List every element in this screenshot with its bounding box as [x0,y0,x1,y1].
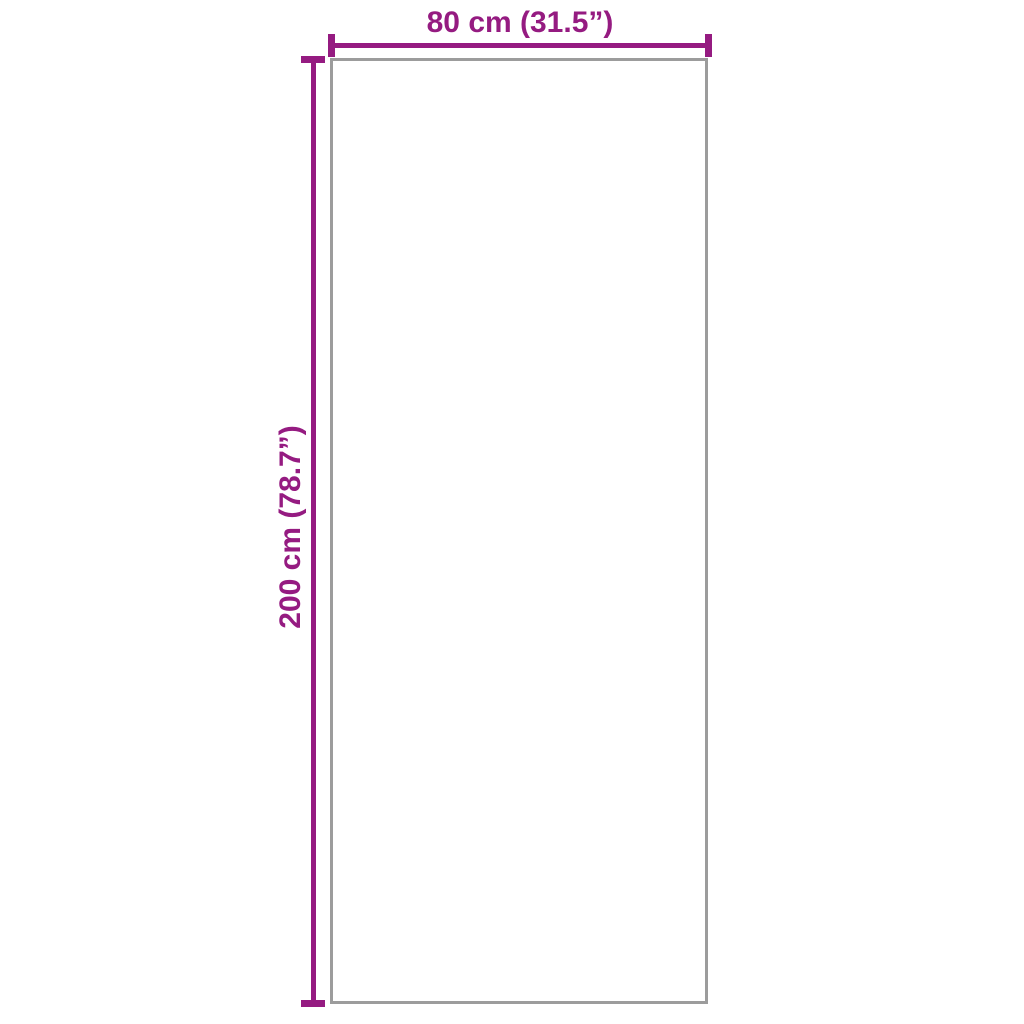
height-dimension-label: 200 cm (78.7”) [274,407,308,647]
dimension-diagram-canvas: 80 cm (31.5”) 200 cm (78.7”) [0,0,1024,1024]
height-dimension-tick-top [301,56,325,63]
width-dimension-label: 80 cm (31.5”) [329,6,711,40]
product-outline-rect [330,58,708,1004]
width-dimension-line [329,43,711,48]
height-dimension-line [311,57,316,1005]
height-dimension-tick-bottom [301,1000,325,1007]
